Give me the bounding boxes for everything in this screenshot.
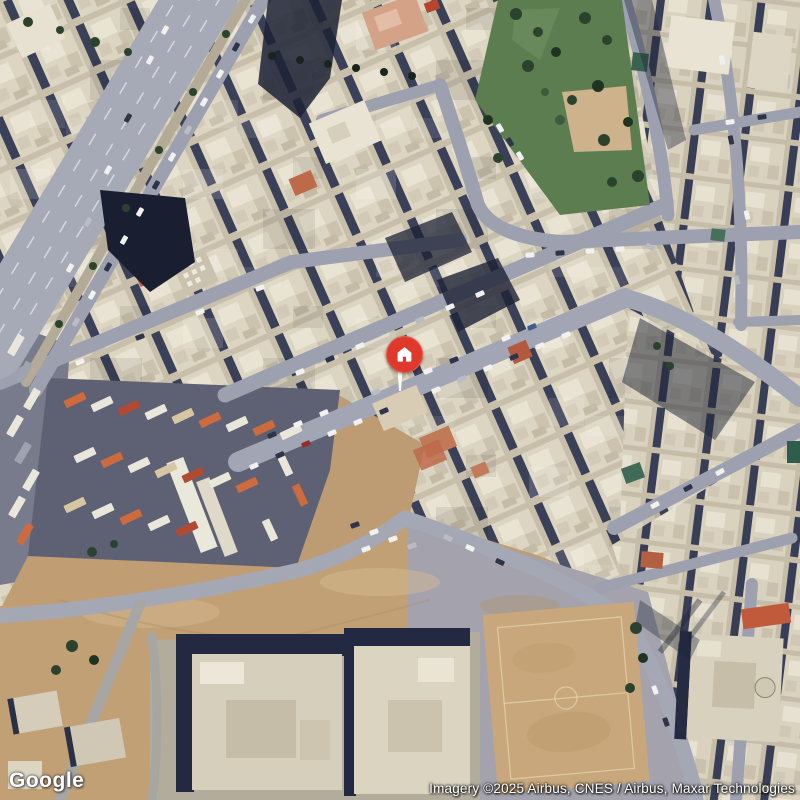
map-viewport[interactable]: Google Imagery ©2025 Airbus, CNES / Airb… <box>0 0 800 800</box>
pin-circle[interactable] <box>386 336 423 373</box>
imagery-attribution: Imagery ©2025 Airbus, CNES / Airbus, Max… <box>429 781 795 796</box>
home-icon <box>394 344 415 365</box>
football-field <box>482 602 649 795</box>
satellite-imagery <box>0 0 800 800</box>
google-logo[interactable]: Google <box>9 769 84 793</box>
